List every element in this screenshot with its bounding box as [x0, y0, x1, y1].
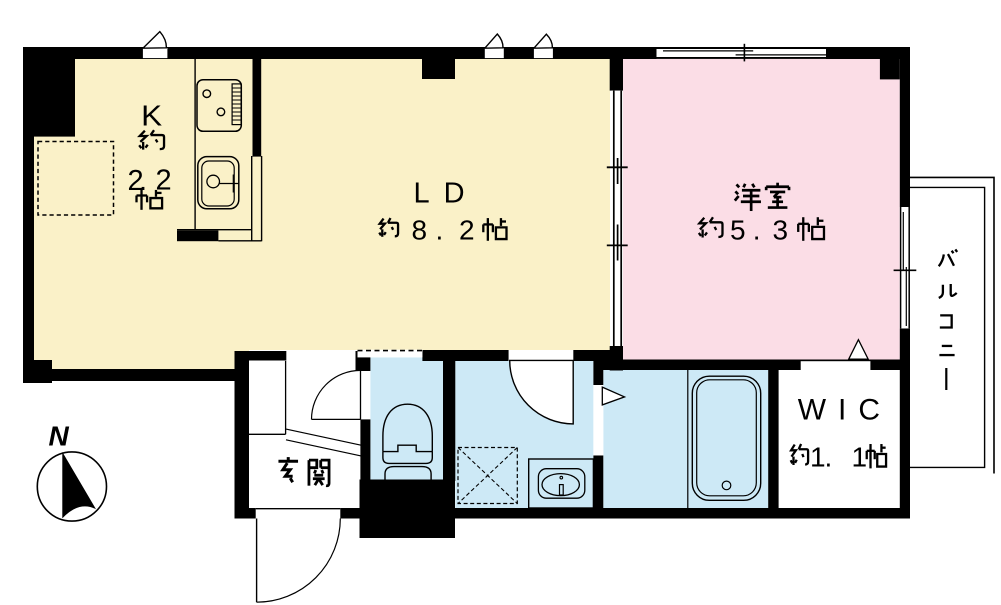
- svg-text:3: 3: [773, 215, 789, 246]
- svg-text:.: .: [825, 442, 833, 473]
- svg-text:WIC: WIC: [798, 394, 892, 427]
- svg-text:5: 5: [730, 215, 746, 246]
- svg-text:.: .: [753, 215, 761, 246]
- svg-text:K: K: [141, 100, 163, 132]
- svg-text:8: 8: [412, 215, 428, 246]
- svg-text:1: 1: [852, 442, 868, 473]
- svg-text:1: 1: [810, 442, 826, 473]
- svg-text:N: N: [49, 421, 70, 452]
- svg-text:.: .: [436, 215, 444, 246]
- svg-text:LD: LD: [414, 177, 479, 209]
- svg-text:2: 2: [156, 165, 172, 197]
- svg-text:.: .: [139, 165, 147, 197]
- svg-text:2: 2: [459, 215, 475, 246]
